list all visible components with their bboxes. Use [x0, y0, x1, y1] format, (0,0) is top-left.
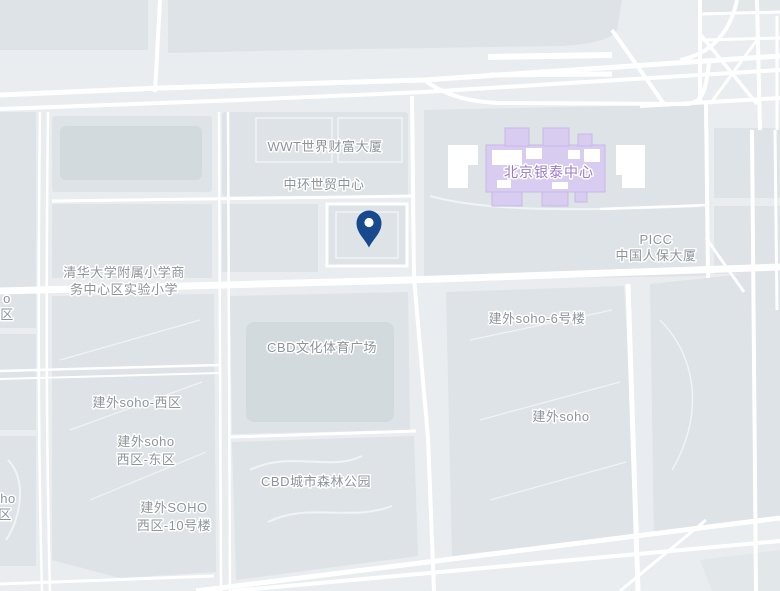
label-edge-cut-top-line2: 区	[0, 307, 14, 322]
road-segment	[757, 0, 760, 130]
label-jianwai-soho: 建外soho	[532, 409, 589, 424]
road-segment	[775, 130, 777, 310]
road-segment	[47, 112, 50, 591]
poi-building	[575, 192, 587, 202]
label-cbd-sports-plaza: CBD文化体育广场	[267, 340, 377, 355]
courtyard	[497, 180, 511, 188]
poi-building	[578, 134, 592, 146]
label-school-line1: 清华大学附属小学商	[63, 265, 185, 280]
label-jianwai-soho-10-line2: 西区-10号楼	[137, 518, 211, 533]
label-zhonghuan-wtc: 中环世贸中心	[283, 177, 364, 192]
label-picc-line2: 中国人保大厦	[615, 248, 696, 263]
city-block	[168, 0, 622, 53]
label-jianwai-soho-we-line1: 建外soho	[117, 434, 174, 449]
road-segment	[706, 104, 708, 278]
city-block	[714, 128, 780, 198]
courtyard	[526, 148, 542, 159]
city-block-park	[232, 436, 418, 580]
road-segment	[155, 0, 160, 92]
label-jianwai-soho-west: 建外soho-西区	[92, 395, 181, 410]
road-segment	[0, 576, 214, 584]
label-yintai-center[interactable]: 北京银泰中心	[504, 164, 594, 180]
road-segment	[39, 112, 42, 591]
courtyard	[584, 149, 600, 162]
label-edge-cut-bottom-line2: 区	[0, 507, 12, 522]
city-block	[0, 334, 36, 430]
poi-building	[543, 128, 569, 146]
road-segment	[488, 55, 612, 57]
city-block	[650, 270, 780, 536]
map-tiles: WWT世界财富大厦 中环世贸中心 北京银泰中心 PICC 中国人保大厦 清华大学…	[0, 0, 780, 591]
poi-building	[542, 192, 568, 206]
pin-hole	[364, 218, 373, 227]
road-segment	[490, 74, 612, 75]
label-jianwai-soho-10-line1: 建外SOHO	[140, 500, 207, 515]
city-block	[222, 204, 318, 272]
poi-building	[505, 128, 529, 146]
road-segment	[700, 12, 780, 40]
city-block	[0, 0, 148, 50]
label-picc-line1: PICC	[639, 232, 672, 247]
label-jianwai-soho-6: 建外soho-6号楼	[489, 311, 586, 326]
courtyard	[552, 182, 568, 189]
city-block	[700, 550, 780, 591]
road-segment	[219, 112, 221, 591]
courtyard	[568, 150, 580, 159]
label-school-line2: 务中心区实验小学	[70, 282, 178, 297]
building-footprint	[246, 322, 394, 422]
courtyard	[492, 150, 522, 165]
map-canvas[interactable]: WWT世界财富大厦 中环世贸中心 北京银泰中心 PICC 中国人保大厦 清华大学…	[0, 0, 780, 591]
city-block	[700, 0, 780, 12]
label-wwt-tower: WWT世界财富大厦	[268, 139, 383, 154]
road-segment	[52, 196, 415, 201]
label-edge-cut-bottom-line1: ho	[0, 491, 15, 506]
label-cbd-forest-park: CBD城市森林公园	[261, 474, 371, 489]
poi-building	[492, 192, 522, 206]
label-jianwai-soho-we-line2: 西区-东区	[117, 452, 176, 467]
building-footprint	[60, 126, 202, 180]
label-edge-cut-top-line1: o	[3, 291, 11, 306]
